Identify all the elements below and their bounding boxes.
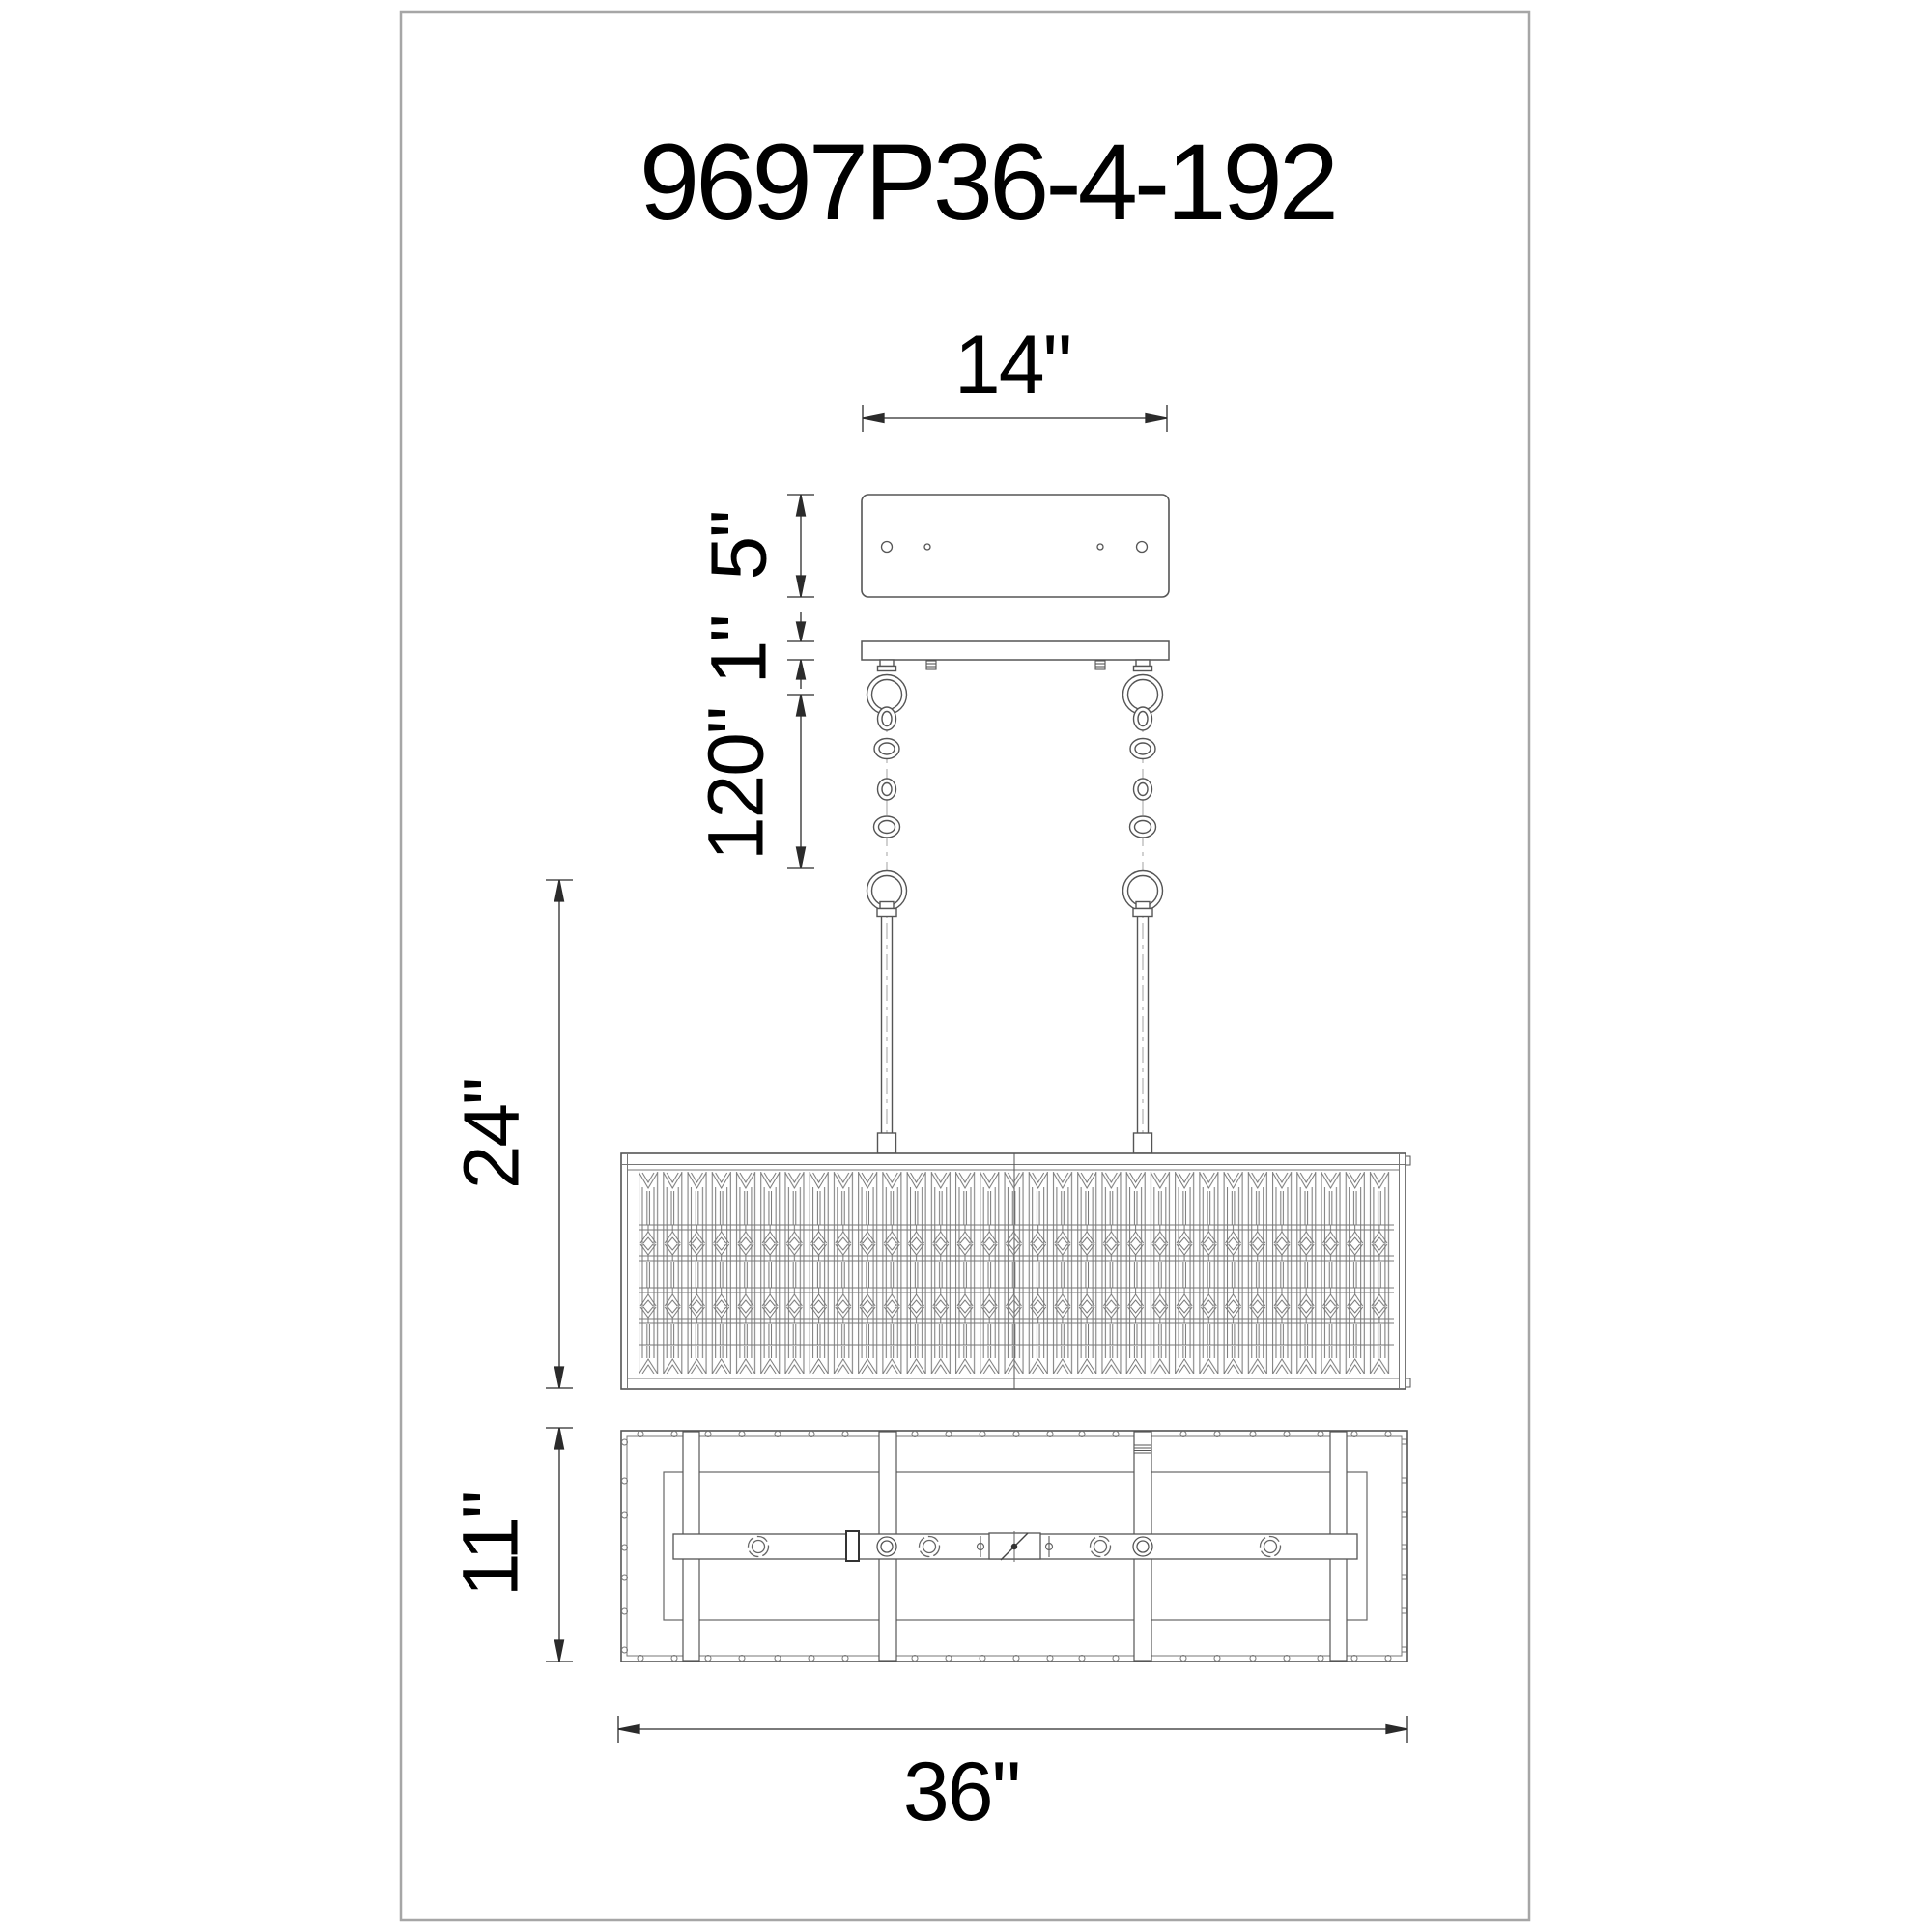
wireway-detail <box>1134 1445 1151 1453</box>
dim-label-fixture-width: 36" <box>903 1746 1019 1838</box>
hanger-strap-bar <box>862 641 1169 660</box>
dim-label-canopy-height: 5" <box>696 512 783 581</box>
dim-fixture-depth <box>546 1428 573 1662</box>
side-tab-top <box>1406 1156 1410 1165</box>
dimension-drawing: 9697P36-4-192 14" 5" 1" 120" 24" 11" 36" <box>0 0 1932 1932</box>
dim-canopy-height <box>787 495 814 597</box>
center-box <box>989 1531 1040 1562</box>
chain-left <box>867 660 907 1153</box>
side-tab-bottom <box>1406 1378 1410 1387</box>
dim-label-canopy-gap: 1" <box>696 616 783 685</box>
chain-right <box>1123 660 1163 1153</box>
dim-overall-drop <box>787 695 814 868</box>
canopy-plate <box>862 495 1169 597</box>
dim-label-body-height: 24" <box>448 1079 536 1189</box>
strap-screws <box>926 661 1105 669</box>
dim-body-height <box>546 880 573 1388</box>
dim-fixture-width <box>618 1716 1407 1743</box>
dim-label-canopy-width: 14" <box>954 319 1070 412</box>
dim-label-fixture-depth: 11" <box>447 1492 535 1597</box>
bottom-view <box>621 1431 1407 1662</box>
dim-canopy-gap <box>787 612 814 689</box>
dim-label-overall-drop: 120" <box>693 708 781 861</box>
coupler-block <box>846 1531 859 1561</box>
spec-sheet: 9697P36-4-192 14" 5" 1" 120" 24" 11" 36" <box>0 0 1932 1932</box>
model-number: 9697P36-4-192 <box>639 122 1335 242</box>
crystal-shade <box>621 1153 1410 1389</box>
crystal-prisms <box>639 1172 1394 1374</box>
